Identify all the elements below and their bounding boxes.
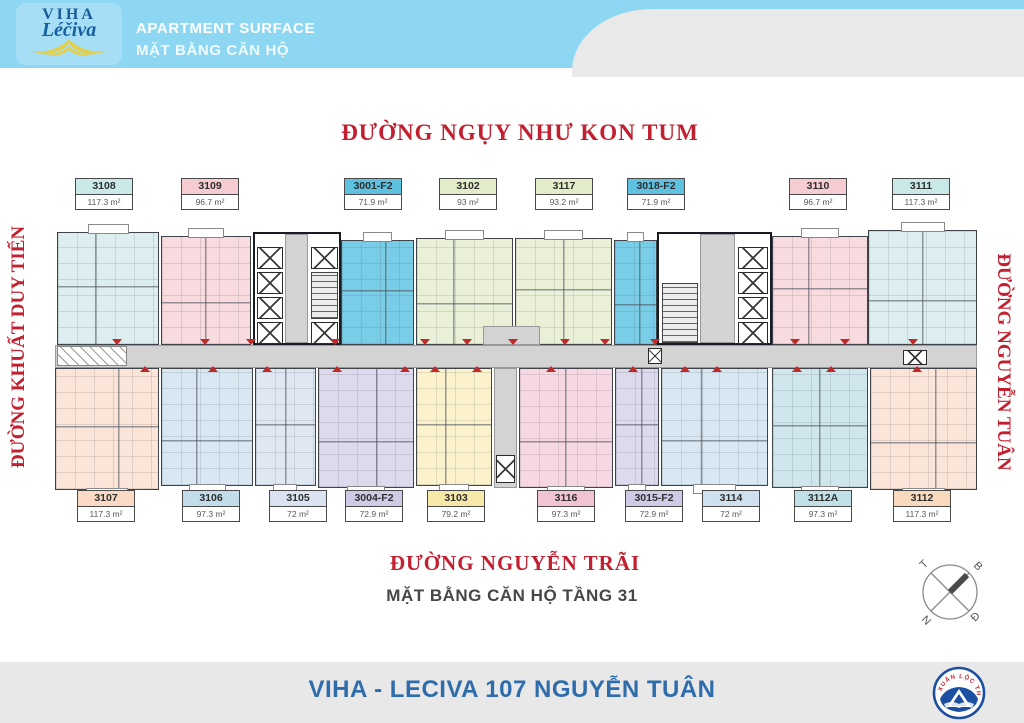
unit-label-number-3103: 3103 — [428, 491, 484, 507]
unit-label-area-3001-F2: 71.9 m² — [345, 195, 401, 209]
balcony-3108 — [88, 224, 129, 234]
company-logo: XUÂN LỘC THỌ — [932, 666, 986, 720]
unit-3114 — [661, 368, 768, 486]
elevator-shaft-8 — [738, 272, 768, 294]
unit-label-area-3112: 117.3 m² — [894, 507, 950, 521]
core-gray-2 — [700, 234, 735, 343]
unit-label-area-3105: 72 m² — [270, 507, 326, 521]
unit-label-number-3105: 3105 — [270, 491, 326, 507]
door-marker-top-13 — [908, 339, 918, 345]
door-marker-bottom-5 — [400, 366, 410, 372]
unit-label-3103: 310379.2 m² — [427, 490, 485, 522]
door-marker-bottom-1 — [140, 366, 150, 372]
door-marker-bottom-9 — [628, 366, 638, 372]
door-marker-bottom-3 — [262, 366, 272, 372]
elevator-shaft-1 — [257, 247, 283, 269]
unit-label-number-3110: 3110 — [790, 179, 846, 195]
unit-label-3110: 311096.7 m² — [789, 178, 847, 210]
unit-3116 — [519, 368, 613, 488]
unit-label-area-3112A: 97.3 m² — [795, 507, 851, 521]
balcony-3117 — [544, 230, 583, 240]
unit-label-3106: 310697.3 m² — [182, 490, 240, 522]
unit-label-3107: 3107117.3 m² — [77, 490, 135, 522]
unit-3112A — [772, 368, 868, 488]
door-marker-top-9 — [600, 339, 610, 345]
unit-label-number-3112A: 3112A — [795, 491, 851, 507]
door-marker-bottom-6 — [430, 366, 440, 372]
compass-rose: T B N Đ — [905, 552, 995, 632]
unit-3112 — [870, 368, 977, 490]
unit-label-3114: 311472 m² — [702, 490, 760, 522]
elevator-shaft-12 — [903, 350, 927, 365]
unit-3109 — [161, 236, 251, 345]
staircase-2 — [662, 283, 698, 343]
unit-3105 — [255, 368, 316, 486]
door-marker-bottom-10 — [680, 366, 690, 372]
balcony-3109 — [188, 228, 224, 238]
door-marker-top-8 — [560, 339, 570, 345]
unit-label-3116: 311697.3 m² — [537, 490, 595, 522]
unit-label-number-3117: 3117 — [536, 179, 592, 195]
elevator-shaft-5 — [311, 247, 338, 269]
unit-3110 — [772, 236, 868, 345]
unit-label-number-3108: 3108 — [76, 179, 132, 195]
unit-3107 — [55, 368, 159, 490]
corridor-ramp-1 — [57, 346, 127, 366]
balcony-3001-F2 — [363, 232, 392, 242]
unit-label-area-3107: 117.3 m² — [78, 507, 134, 521]
unit-3103 — [416, 368, 492, 486]
door-marker-bottom-14 — [912, 366, 922, 372]
door-marker-top-5 — [420, 339, 430, 345]
door-marker-top-10 — [650, 339, 660, 345]
unit-label-3018-F2: 3018-F271.9 m² — [627, 178, 685, 210]
compass-label-east: Đ — [969, 610, 983, 624]
balcony-3018-F2 — [627, 232, 644, 242]
door-marker-bottom-13 — [826, 366, 836, 372]
unit-label-area-3109: 96.7 m² — [182, 195, 238, 209]
core-gray-1 — [285, 234, 308, 343]
balcony-3110 — [801, 228, 839, 238]
unit-label-area-3116: 97.3 m² — [538, 507, 594, 521]
unit-label-area-3018-F2: 71.9 m² — [628, 195, 684, 209]
unit-label-area-3015-F2: 72.9 m² — [626, 507, 682, 521]
unit-label-number-3112: 3112 — [894, 491, 950, 507]
door-marker-top-1 — [112, 339, 122, 345]
unit-label-3105: 310572 m² — [269, 490, 327, 522]
unit-label-3117: 311793.2 m² — [535, 178, 593, 210]
balcony-3111 — [901, 222, 945, 232]
unit-3018-F2 — [614, 240, 657, 345]
unit-label-number-3114: 3114 — [703, 491, 759, 507]
door-marker-bottom-4 — [332, 366, 342, 372]
unit-label-3001-F2: 3001-F271.9 m² — [344, 178, 402, 210]
unit-label-number-3111: 3111 — [893, 179, 949, 195]
staircase-1 — [311, 272, 338, 319]
elevator-shaft-7 — [738, 247, 768, 269]
unit-3111 — [868, 230, 977, 345]
elevator-shaft-4 — [257, 322, 283, 344]
unit-3001-F2 — [341, 240, 414, 345]
unit-label-3112: 3112117.3 m² — [893, 490, 951, 522]
unit-label-3004-F2: 3004-F272.9 m² — [345, 490, 403, 522]
elevator-shaft-13 — [496, 455, 515, 483]
door-marker-top-3 — [246, 339, 256, 345]
unit-3108 — [57, 232, 159, 345]
unit-label-3112A: 3112A97.3 m² — [794, 490, 852, 522]
balcony-3102 — [445, 230, 484, 240]
unit-label-area-3102: 93 m² — [440, 195, 496, 209]
unit-label-number-3109: 3109 — [182, 179, 238, 195]
unit-label-area-3117: 93.2 m² — [536, 195, 592, 209]
door-marker-top-7 — [508, 339, 518, 345]
unit-label-area-3004-F2: 72.9 m² — [346, 507, 402, 521]
unit-3004-F2 — [318, 368, 414, 488]
unit-label-number-3106: 3106 — [183, 491, 239, 507]
unit-label-number-3004-F2: 3004-F2 — [346, 491, 402, 507]
floor-plan: 3108117.3 m²310996.7 m²3001-F271.9 m²310… — [0, 0, 1024, 723]
unit-label-3102: 310293 m² — [439, 178, 497, 210]
compass-label-south: N — [919, 614, 933, 628]
unit-label-3108: 3108117.3 m² — [75, 178, 133, 210]
unit-label-number-3116: 3116 — [538, 491, 594, 507]
elevator-shaft-2 — [257, 272, 283, 294]
unit-label-3111: 3111117.3 m² — [892, 178, 950, 210]
door-marker-bottom-2 — [208, 366, 218, 372]
unit-label-area-3106: 97.3 m² — [183, 507, 239, 521]
door-marker-bottom-12 — [792, 366, 802, 372]
unit-3015-F2 — [615, 368, 659, 486]
unit-label-area-3114: 72 m² — [703, 507, 759, 521]
unit-label-area-3110: 96.7 m² — [790, 195, 846, 209]
unit-label-area-3103: 79.2 m² — [428, 507, 484, 521]
unit-label-number-3107: 3107 — [78, 491, 134, 507]
compass-label-north: B — [971, 560, 985, 574]
unit-label-number-3018-F2: 3018-F2 — [628, 179, 684, 195]
elevator-shaft-11 — [648, 348, 662, 364]
door-marker-top-2 — [200, 339, 210, 345]
unit-label-area-3111: 117.3 m² — [893, 195, 949, 209]
unit-3106 — [161, 368, 253, 486]
door-marker-top-12 — [840, 339, 850, 345]
unit-label-area-3108: 117.3 m² — [76, 195, 132, 209]
door-marker-bottom-7 — [472, 366, 482, 372]
unit-label-3015-F2: 3015-F272.9 m² — [625, 490, 683, 522]
elevator-shaft-9 — [738, 297, 768, 319]
elevator-shaft-3 — [257, 297, 283, 319]
elevator-shaft-10 — [738, 322, 768, 344]
unit-label-number-3102: 3102 — [440, 179, 496, 195]
unit-label-3109: 310996.7 m² — [181, 178, 239, 210]
door-marker-bottom-8 — [546, 366, 556, 372]
unit-label-number-3001-F2: 3001-F2 — [345, 179, 401, 195]
door-marker-bottom-11 — [712, 366, 722, 372]
corridor — [55, 345, 977, 368]
door-marker-top-11 — [790, 339, 800, 345]
unit-label-number-3015-F2: 3015-F2 — [626, 491, 682, 507]
door-marker-top-6 — [462, 339, 472, 345]
footer-title: VIHA - LECIVA 107 NGUYỄN TUÂN — [0, 676, 1024, 704]
compass-label-west: T — [918, 558, 931, 571]
door-marker-top-4 — [330, 339, 340, 345]
